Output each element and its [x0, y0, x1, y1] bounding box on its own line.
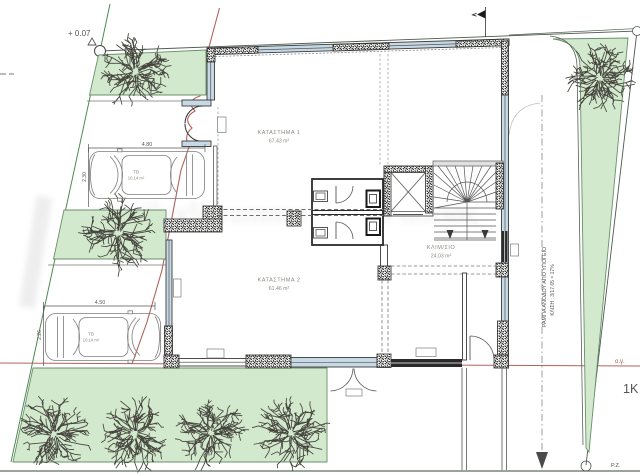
svg-text:10.14 m²: 10.14 m² — [83, 338, 100, 343]
svg-text:4.50: 4.50 — [95, 300, 106, 306]
svg-text:24.03 m²: 24.03 m² — [431, 254, 452, 260]
svg-text:2.26: 2.26 — [37, 330, 43, 340]
svg-text:ΚΑΤΑΣΤΗΜΑ 1: ΚΑΤΑΣΤΗΜΑ 1 — [258, 130, 301, 136]
svg-text:ΡΑΜΠΑ ΑΝΟΔΟΥ ΑΠΟ ΥΠΟΓΕΙΟ: ΡΑΜΠΑ ΑΝΟΔΟΥ ΑΠΟ ΥΠΟΓΕΙΟ — [542, 247, 548, 327]
svg-text:ΚΛΙΣΗ : 3/17.65 = 17%: ΚΛΙΣΗ : 3/17.65 = 17% — [550, 264, 556, 316]
svg-text:+ 0.07: + 0.07 — [68, 29, 91, 38]
svg-text:4.80: 4.80 — [142, 142, 153, 148]
svg-text:ο.γ.: ο.γ. — [615, 359, 625, 365]
svg-text:67.43 m²: 67.43 m² — [269, 139, 290, 145]
svg-text:2.30: 2.30 — [82, 172, 88, 182]
svg-text:Ρ.Ζ.: Ρ.Ζ. — [611, 463, 621, 469]
svg-text:1Κ: 1Κ — [623, 382, 639, 396]
svg-text:10.14 m²: 10.14 m² — [128, 176, 145, 181]
svg-text:61.46 m²: 61.46 m² — [269, 286, 290, 292]
svg-text:ΚΛΙΜ/ΣΙΟ: ΚΛΙΜ/ΣΙΟ — [427, 245, 456, 251]
svg-text:ΚΑΤΑΣΤΗΜΑ 2: ΚΑΤΑΣΤΗΜΑ 2 — [258, 278, 301, 284]
